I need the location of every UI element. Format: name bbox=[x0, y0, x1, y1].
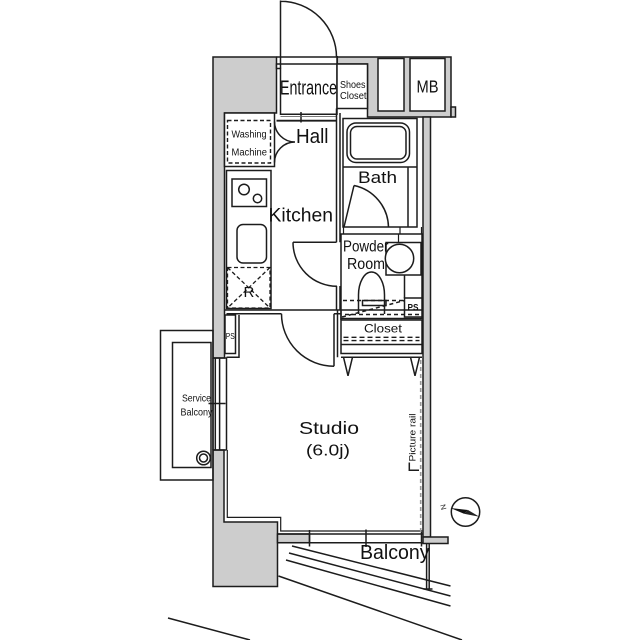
svg-text:Service: Service bbox=[182, 394, 211, 405]
svg-text:Closet: Closet bbox=[364, 324, 403, 336]
svg-text:MB: MB bbox=[417, 77, 439, 97]
svg-text:Closet: Closet bbox=[340, 91, 367, 102]
svg-text:PS: PS bbox=[226, 331, 235, 341]
svg-text:PS: PS bbox=[408, 303, 419, 314]
svg-text:Kitchen: Kitchen bbox=[269, 205, 334, 227]
svg-text:Shoes: Shoes bbox=[340, 80, 366, 91]
svg-text:Powder: Powder bbox=[343, 239, 389, 256]
svg-text:Machine: Machine bbox=[232, 148, 268, 159]
svg-text:(6.0j): (6.0j) bbox=[306, 443, 350, 460]
svg-text:Washing: Washing bbox=[232, 130, 267, 141]
svg-text:Balcony: Balcony bbox=[360, 542, 430, 564]
svg-text:Hall: Hall bbox=[296, 126, 329, 148]
svg-text:R: R bbox=[244, 284, 255, 301]
svg-text:Entrance: Entrance bbox=[280, 78, 337, 100]
svg-text:Studio: Studio bbox=[299, 418, 359, 438]
svg-text:Bath: Bath bbox=[358, 168, 397, 187]
svg-text:Picture rail: Picture rail bbox=[408, 414, 419, 462]
svg-text:Balcony: Balcony bbox=[181, 408, 213, 419]
svg-text:Room: Room bbox=[347, 256, 385, 273]
